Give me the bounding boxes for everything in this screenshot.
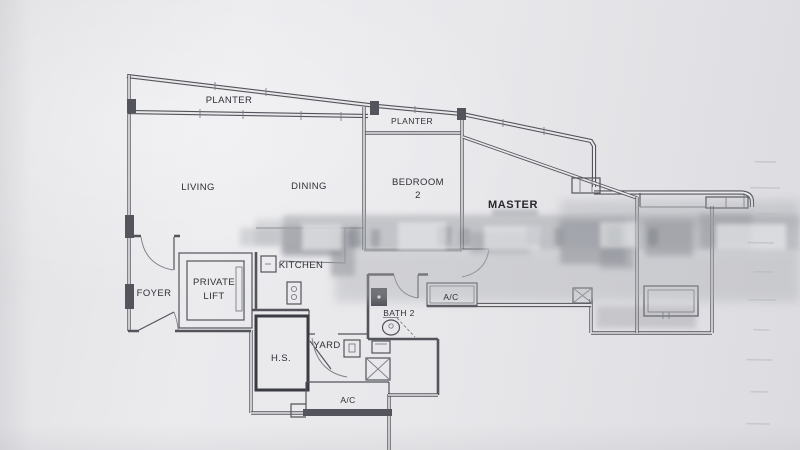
stove-burner	[291, 294, 296, 299]
room-label-private-lift: PRIVATE	[193, 277, 235, 288]
ghost-letter	[460, 228, 470, 246]
toilet-bowl	[383, 320, 400, 335]
room-label-kitchen: KITCHEN	[279, 260, 324, 271]
door-jamb-block	[125, 215, 134, 238]
ghost-letter	[371, 229, 380, 247]
washer-box	[344, 340, 360, 357]
ac-lower-bottom-wall	[303, 409, 392, 416]
door-jamb-block	[125, 284, 134, 309]
room-label-master: MASTER	[488, 199, 538, 211]
room-label-bedroom2-number: 2	[415, 190, 421, 201]
floor-plan-page: PLANTER PLANTER LIVING DINING BEDROOM 2 …	[0, 0, 800, 450]
room-label-ac-lower: A/C	[340, 395, 355, 405]
blur-band-lower	[335, 249, 800, 302]
room-label-bedroom2: BEDROOM	[392, 177, 444, 188]
shaft-cross	[366, 358, 390, 380]
blur-band-left-fade	[255, 219, 300, 245]
ghost-light-patch	[302, 224, 342, 250]
stove-burner	[291, 286, 296, 291]
wall-top-sloped-core	[127, 76, 594, 187]
ghost-light-patch	[600, 222, 636, 248]
ghost-light-patch	[716, 224, 786, 250]
wall-master-top-sloped-core	[463, 137, 637, 198]
floor-plan-drawing: PLANTER PLANTER LIVING DINING BEDROOM 2 …	[0, 0, 800, 450]
wall-top-sloped	[127, 76, 594, 187]
room-label-yard: YARD	[313, 340, 340, 351]
foyer-living-door-arc	[141, 237, 173, 270]
sink-box	[372, 341, 390, 353]
corner-block	[457, 108, 466, 120]
entrance-door-leaf	[139, 312, 174, 330]
ghost-light-patch	[398, 222, 446, 250]
stove-box	[287, 282, 301, 304]
room-label-planter-left: PLANTER	[206, 95, 253, 106]
hs-shelter	[256, 316, 347, 390]
room-label-hs: H.S.	[271, 353, 291, 364]
ghost-letter	[348, 227, 362, 248]
room-label-planter-right: PLANTER	[391, 116, 433, 126]
room-label-dining: DINING	[291, 181, 327, 192]
corner-block	[370, 101, 379, 115]
washer-inner	[349, 344, 355, 352]
lift-door-bar	[236, 267, 242, 311]
toilet-flush-dot	[389, 324, 393, 328]
yard-fixtures	[344, 340, 390, 380]
ghost-letter	[648, 228, 658, 246]
corner-block	[127, 99, 136, 113]
room-label-private-lift-2: LIFT	[203, 291, 224, 302]
ghost-shape	[596, 306, 696, 328]
ghost-light-patch	[484, 226, 540, 250]
room-label-foyer: FOYER	[137, 288, 172, 299]
ghost-letter	[554, 228, 563, 246]
entrance-door-arc	[174, 312, 178, 330]
room-label-ac-upper: A/C	[443, 292, 458, 302]
room-label-bath2: BATH 2	[383, 308, 415, 318]
room-label-living: LIVING	[181, 182, 215, 193]
